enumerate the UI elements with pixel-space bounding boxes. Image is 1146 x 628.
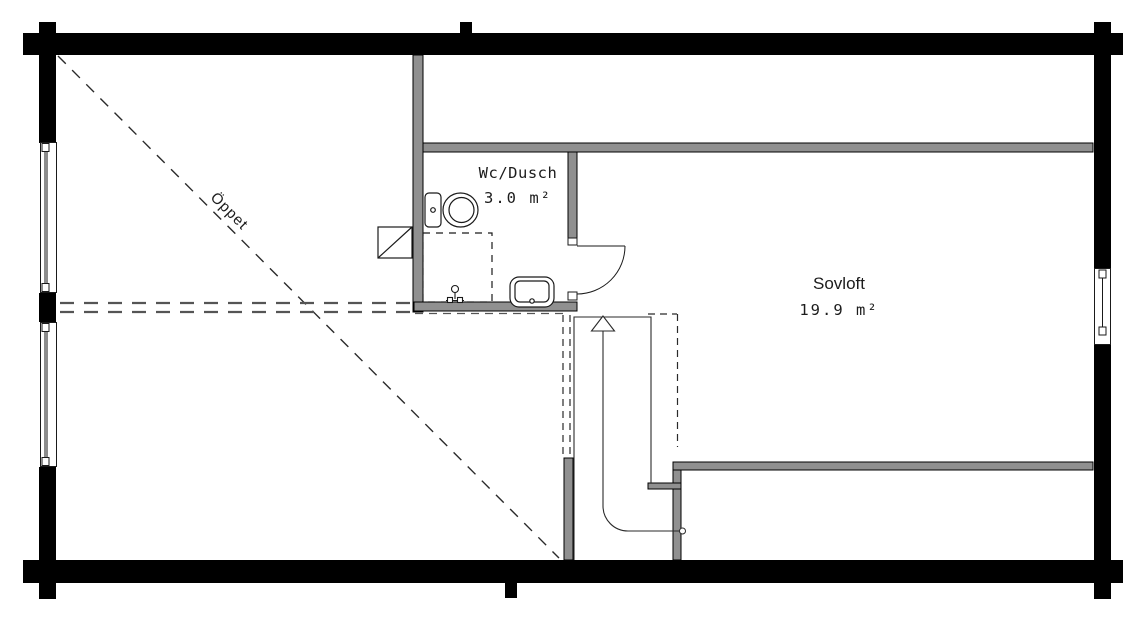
window-left-lower xyxy=(41,323,57,467)
floor-plan-drawing xyxy=(0,0,1146,628)
stair-walk-line xyxy=(603,331,680,531)
door-jamb-bottom xyxy=(568,292,577,300)
bathroom-fixtures xyxy=(378,193,554,307)
floor-plan: Öppet Wc/Dusch 3.0 m² Sovloft 19.9 m² xyxy=(0,0,1146,628)
exterior-wall-top xyxy=(23,33,1123,55)
stair-direction-arrow xyxy=(592,316,615,331)
door-jamb-top xyxy=(568,238,577,245)
stair-railing xyxy=(648,483,681,489)
shower-mixer-symbol xyxy=(446,286,464,303)
chimney-symbol xyxy=(378,227,412,258)
interior-wall-bathroom-left xyxy=(413,55,423,312)
exterior-wall-bottom xyxy=(23,560,1123,583)
sleeping-loft-label: Sovloft xyxy=(789,274,889,294)
window-left-upper xyxy=(41,143,57,293)
stair-flight-outline xyxy=(574,317,651,560)
bathroom-label: Wc/Dusch xyxy=(460,164,576,182)
door-swing-arc xyxy=(577,246,625,294)
log-joint-tab-top xyxy=(460,22,472,33)
interior-wall-stair-left xyxy=(564,458,573,560)
interior-wall-knee-top xyxy=(423,143,1093,152)
staircase xyxy=(563,314,686,560)
exterior-wall-left-middle xyxy=(39,293,56,322)
bathroom-door xyxy=(568,238,625,300)
exterior-wall-right-upper xyxy=(1094,22,1111,268)
exterior-wall-left-upper xyxy=(39,22,56,143)
window-right xyxy=(1095,269,1111,345)
sleeping-loft-area: 19.9 m² xyxy=(789,301,889,319)
interior-walls xyxy=(413,55,1093,560)
log-joint-tab-bottom xyxy=(505,583,517,598)
bathroom-area: 3.0 m² xyxy=(460,189,576,207)
exterior-wall-left-lower xyxy=(39,467,56,599)
stair-walk-line-start xyxy=(680,528,686,534)
sink-symbol xyxy=(510,277,554,307)
exterior-wall-right-lower xyxy=(1094,345,1111,599)
interior-wall-knee-bottom xyxy=(673,462,1093,470)
